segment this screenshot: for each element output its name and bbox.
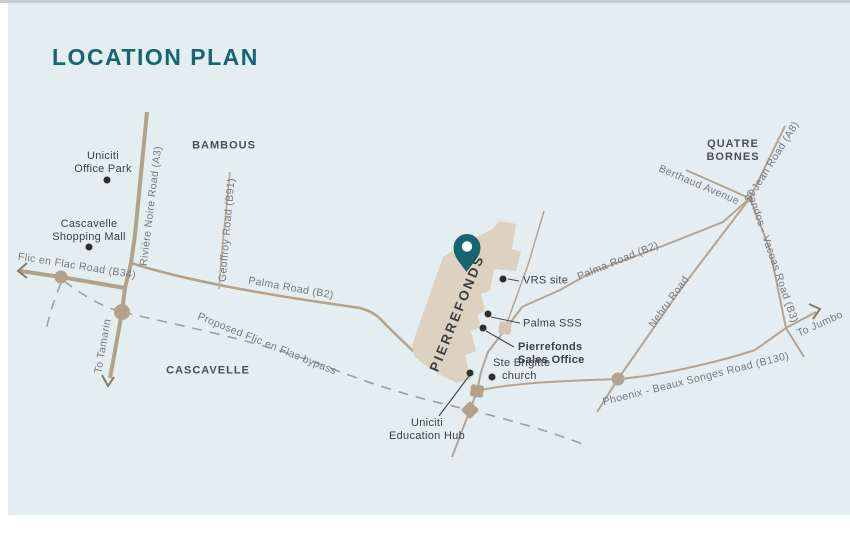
vrs-site-dot [500,276,507,283]
poi-label-ste-brigitte: Ste Brigitte church [493,357,550,383]
poi-label-shopping-mall: Cascavelle Shopping Mall [52,218,126,244]
page-title: LOCATION PLAN [52,44,259,71]
palma-sss-building [498,321,512,335]
roundabout-flic-en-flac [55,271,68,284]
roundabout-phoenix-nehru [612,373,625,386]
palma-sss-dot [485,311,492,318]
poi-label-vrs-site: VRS site [523,275,568,288]
office-park-dot [104,177,111,184]
bypass-dashed-branch [46,283,61,331]
poi-label-office-park: Uniciti Office Park [74,150,132,176]
vrs-leader-line [508,279,519,281]
education-hub-dot [467,370,474,377]
sales-office-dot [480,325,487,332]
roundabout-bypass [114,304,130,320]
area-label-quatre-bornes: QUATRE BORNES [706,138,759,164]
area-label-cascavelle: CASCAVELLE [166,365,250,378]
junction-ste-brigitte [470,384,485,398]
shopping-mall-dot [86,244,93,251]
poi-label-education-hub: Uniciti Education Hub [389,417,465,443]
poi-label-palma-sss: Palma SSS [523,318,582,331]
area-label-bambous: BAMBOUS [192,140,256,153]
